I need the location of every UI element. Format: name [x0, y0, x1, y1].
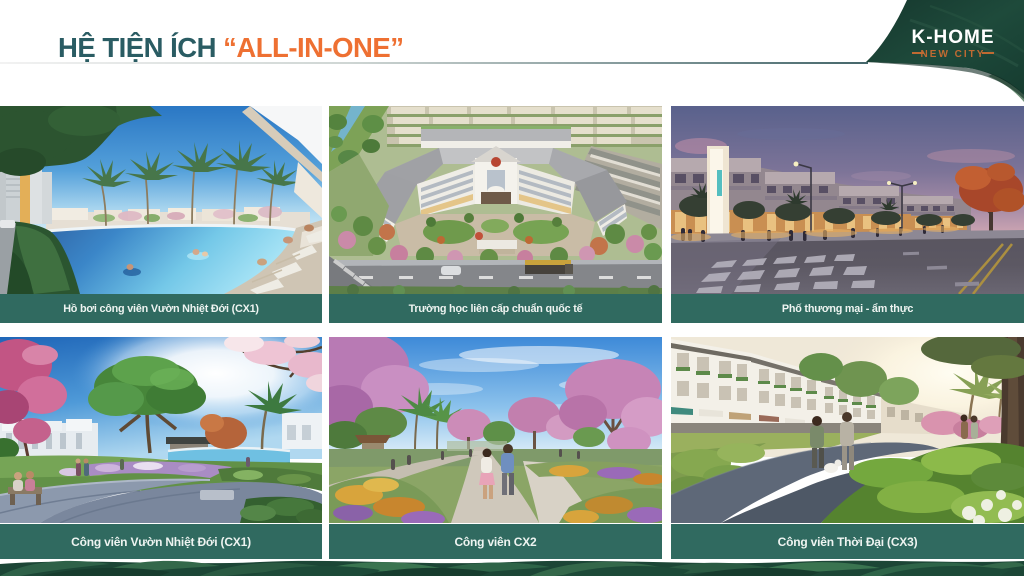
- svg-text:NEW CITY: NEW CITY: [921, 49, 986, 60]
- svg-text:K-HOME: K-HOME: [911, 27, 994, 48]
